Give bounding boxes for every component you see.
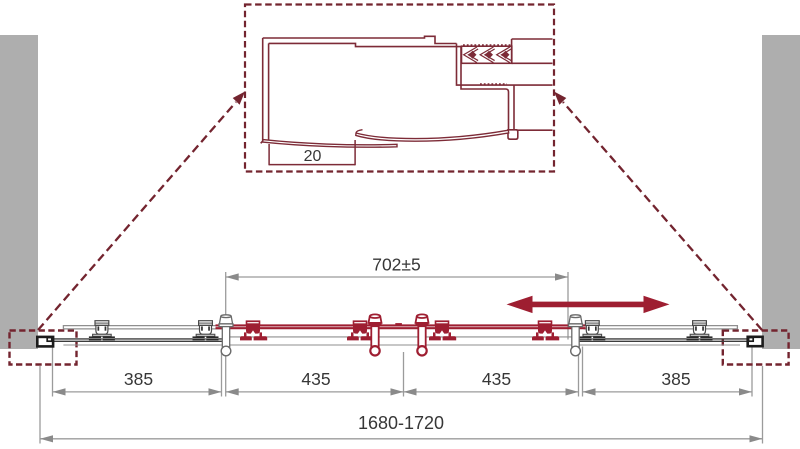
svg-text:435: 435 xyxy=(301,369,330,389)
svg-text:702±5: 702±5 xyxy=(372,255,421,275)
svg-text:435: 435 xyxy=(482,369,511,389)
svg-text:20: 20 xyxy=(304,148,322,165)
svg-text:1680-1720: 1680-1720 xyxy=(358,413,444,433)
svg-text:385: 385 xyxy=(661,369,690,389)
svg-text:385: 385 xyxy=(124,369,153,389)
